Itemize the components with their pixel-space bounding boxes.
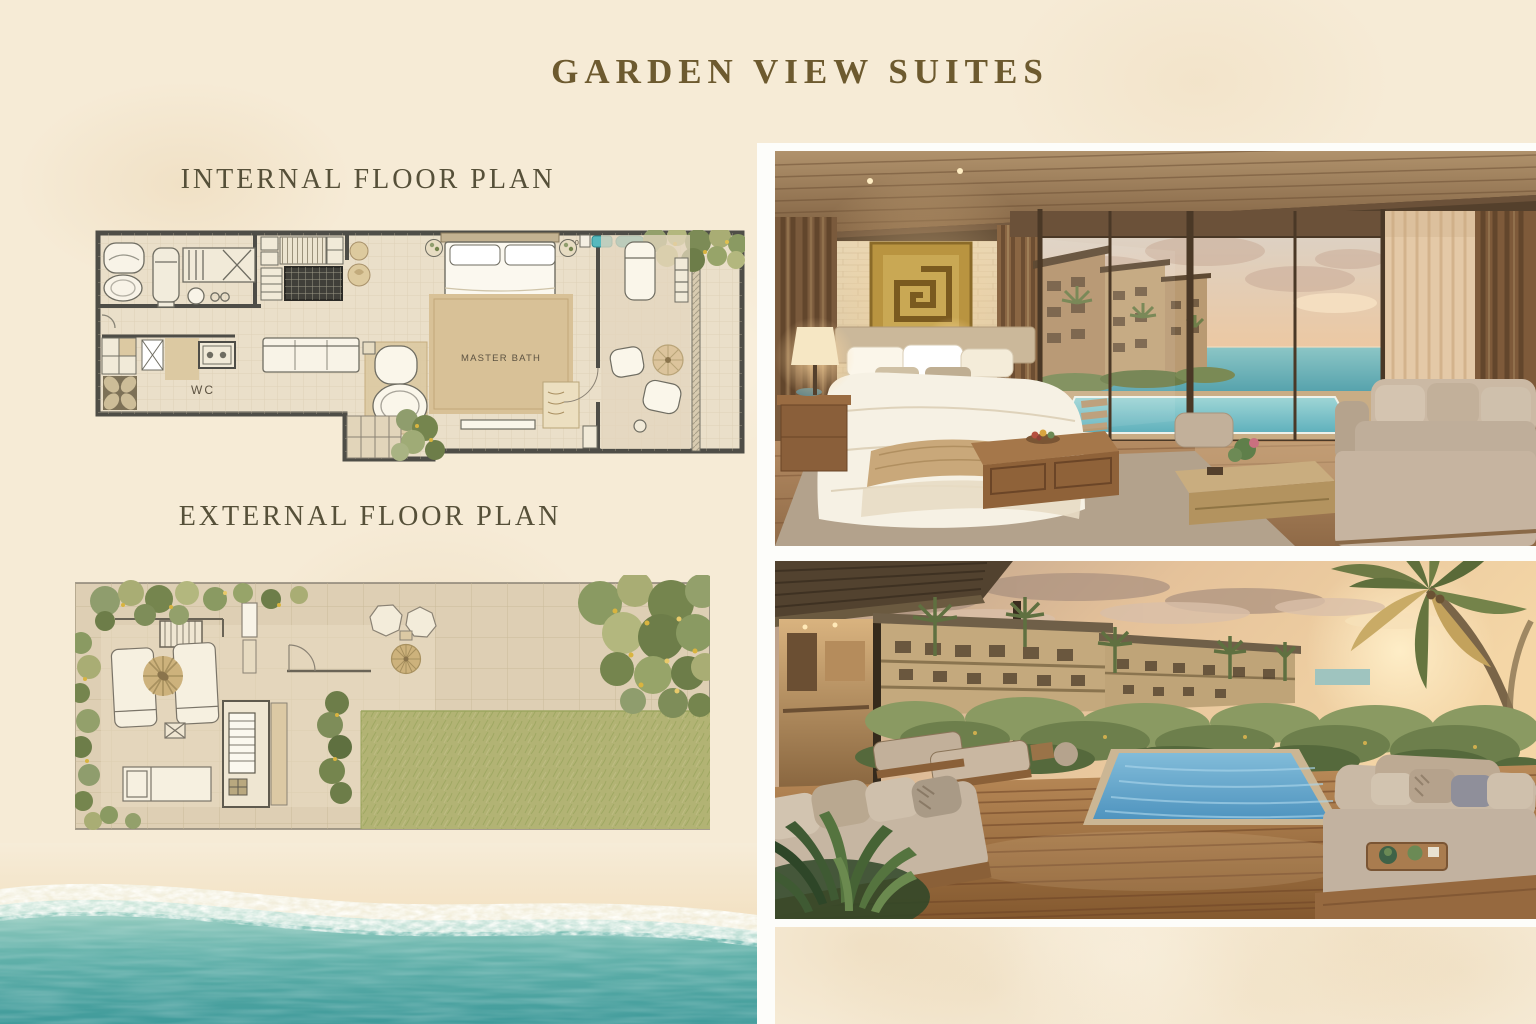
plunge-pool xyxy=(1083,749,1341,825)
wc-label: WC xyxy=(191,383,215,397)
ottoman xyxy=(1175,413,1233,447)
outdoor-shower-structure xyxy=(223,701,287,807)
ocean-sliver xyxy=(1315,669,1370,685)
butterfly-rug xyxy=(101,373,140,412)
living-sofa xyxy=(263,338,375,372)
internal-floor-plan-label: INTERNAL FLOOR PLAN xyxy=(181,164,556,196)
external-floor-plan-label: EXTERNAL FLOOR PLAN xyxy=(179,501,562,533)
palm-parasol xyxy=(143,656,183,696)
wardrobe-closets xyxy=(261,237,343,300)
deck-render-photo xyxy=(775,561,1536,919)
bottom-right-margin xyxy=(775,927,1536,1024)
sun-glow xyxy=(1293,293,1377,313)
grass-lawn xyxy=(361,711,710,829)
beach-aerial-image xyxy=(0,843,757,1024)
external-floor-plan xyxy=(75,575,710,845)
left-nightstand xyxy=(777,388,851,471)
left-lamp xyxy=(775,317,855,397)
internal-floor-plan: 10 MASTER BATH xyxy=(95,230,745,470)
serving-tray xyxy=(1367,843,1447,870)
page-title: GARDEN VIEW SUITES xyxy=(551,52,1049,92)
brochure-page: GARDEN VIEW SUITES INTERNAL FLOOR PLAN xyxy=(0,0,1536,1024)
bedroom-render-photo xyxy=(775,151,1536,546)
master-bath-label: MASTER BATH xyxy=(461,353,541,364)
foot-bench-chest xyxy=(971,430,1119,510)
lounge-sofa xyxy=(1335,379,1536,546)
right-daybed xyxy=(1315,754,1536,919)
round-pouf xyxy=(392,645,421,674)
